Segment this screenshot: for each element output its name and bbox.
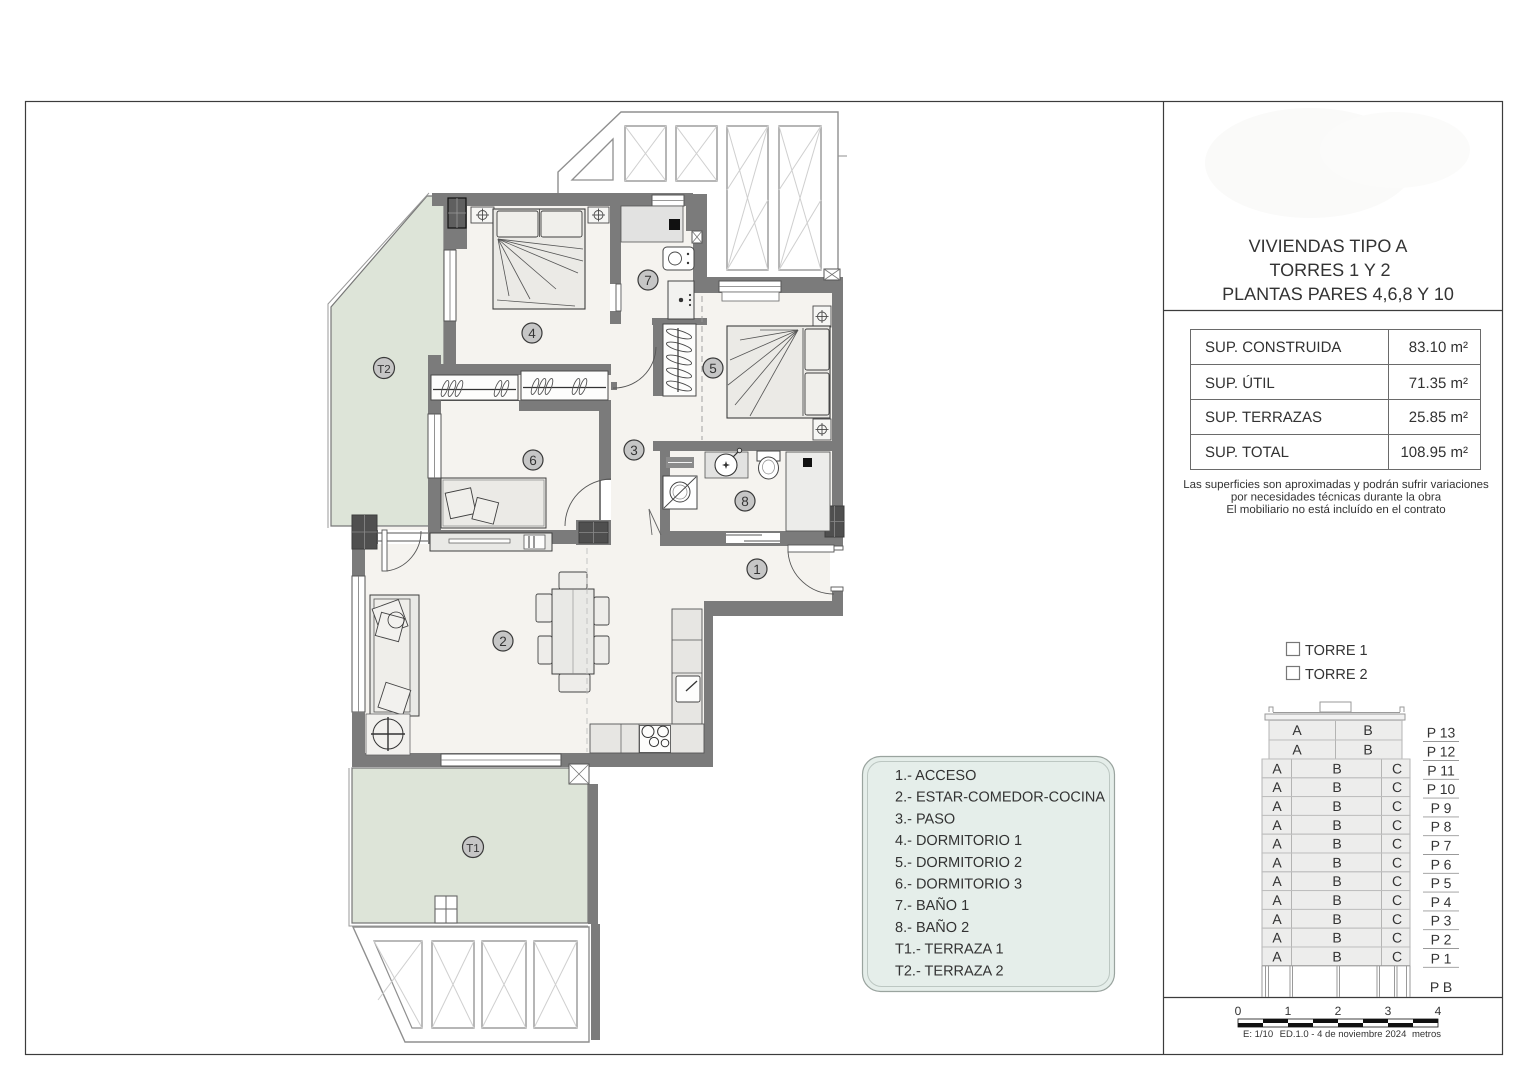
svg-text:A: A: [1272, 873, 1282, 889]
svg-text:P 5: P 5: [1431, 875, 1452, 891]
svg-text:83.10 m²: 83.10 m²: [1409, 339, 1468, 356]
svg-text:B: B: [1332, 836, 1341, 852]
svg-text:ED.1.0 - 4 de noviembre 2024: ED.1.0 - 4 de noviembre 2024: [1280, 1029, 1407, 1040]
svg-text:1.- ACCESO: 1.- ACCESO: [895, 768, 976, 784]
svg-text:2: 2: [1335, 1004, 1342, 1018]
svg-text:A: A: [1272, 892, 1282, 908]
svg-text:P 3: P 3: [1431, 913, 1452, 929]
svg-text:C: C: [1392, 836, 1402, 852]
svg-text:5: 5: [709, 361, 717, 376]
svg-text:0: 0: [1235, 1004, 1242, 1018]
svg-text:TORRE 1: TORRE 1: [1305, 643, 1368, 659]
svg-text:4: 4: [528, 326, 536, 341]
svg-text:A: A: [1292, 742, 1302, 758]
svg-text:P 6: P 6: [1431, 856, 1452, 872]
svg-text:P 10: P 10: [1427, 781, 1456, 797]
svg-text:3: 3: [1385, 1004, 1392, 1018]
svg-text:B: B: [1363, 722, 1372, 738]
svg-text:C: C: [1392, 873, 1402, 889]
svg-text:P 11: P 11: [1427, 762, 1455, 778]
svg-text:P 4: P 4: [1431, 894, 1452, 910]
svg-text:7.- BAÑO 1: 7.- BAÑO 1: [895, 897, 969, 914]
svg-text:PLANTAS PARES 4,6,8 Y 10: PLANTAS PARES 4,6,8 Y 10: [1222, 284, 1454, 304]
svg-text:B: B: [1332, 892, 1341, 908]
svg-text:2: 2: [499, 634, 507, 649]
svg-text:1: 1: [753, 562, 761, 577]
svg-text:8.- BAÑO 2: 8.- BAÑO 2: [895, 919, 969, 936]
svg-text:8: 8: [741, 494, 749, 509]
svg-text:B: B: [1363, 742, 1372, 758]
svg-text:Las superficies son aproximada: Las superficies son aproximadas y podrán…: [1183, 479, 1489, 491]
svg-text:El mobiliario no está incluído: El mobiliario no está incluído en el con…: [1226, 504, 1445, 516]
svg-text:3: 3: [630, 443, 638, 458]
svg-text:A: A: [1272, 854, 1282, 870]
svg-text:5.- DORMITORIO 2: 5.- DORMITORIO 2: [895, 855, 1022, 871]
svg-text:C: C: [1392, 930, 1402, 946]
svg-text:A: A: [1272, 817, 1282, 833]
svg-text:C: C: [1392, 892, 1402, 908]
svg-text:A: A: [1272, 779, 1282, 795]
svg-text:B: B: [1332, 760, 1341, 776]
svg-text:C: C: [1392, 911, 1402, 927]
svg-text:6.- DORMITORIO 3: 6.- DORMITORIO 3: [895, 877, 1022, 893]
svg-text:SUP. CONSTRUIDA: SUP. CONSTRUIDA: [1205, 339, 1341, 356]
svg-text:A: A: [1272, 798, 1282, 814]
svg-text:25.85 m²: 25.85 m²: [1409, 409, 1468, 426]
svg-text:71.35 m²: 71.35 m²: [1409, 375, 1468, 392]
svg-text:T2: T2: [377, 364, 390, 376]
svg-text:P 1: P 1: [1431, 950, 1452, 966]
svg-text:C: C: [1392, 817, 1402, 833]
svg-text:B: B: [1332, 911, 1341, 927]
svg-text:por necesidades técnicas duran: por necesidades técnicas durante la obra: [1231, 492, 1442, 504]
svg-text:4: 4: [1435, 1004, 1442, 1018]
svg-text:B: B: [1332, 798, 1341, 814]
svg-text:P 13: P 13: [1427, 725, 1456, 741]
svg-text:C: C: [1392, 854, 1402, 870]
svg-text:A: A: [1272, 948, 1282, 964]
svg-text:B: B: [1332, 948, 1341, 964]
svg-text:C: C: [1392, 760, 1402, 776]
svg-text:metros: metros: [1412, 1029, 1441, 1040]
svg-text:B: B: [1332, 779, 1341, 795]
svg-text:A: A: [1272, 911, 1282, 927]
svg-text:T1.- TERRAZA 1: T1.- TERRAZA 1: [895, 942, 1004, 958]
svg-text:P 9: P 9: [1431, 800, 1452, 816]
svg-text:A: A: [1292, 722, 1302, 738]
svg-text:7: 7: [644, 273, 652, 288]
svg-text:B: B: [1332, 873, 1341, 889]
svg-text:E: 1/10: E: 1/10: [1243, 1029, 1273, 1040]
svg-text:TORRE 2: TORRE 2: [1305, 667, 1368, 683]
svg-text:4.- DORMITORIO 1: 4.- DORMITORIO 1: [895, 833, 1022, 849]
svg-text:3.- PASO: 3.- PASO: [895, 811, 955, 827]
svg-text:P 12: P 12: [1427, 744, 1456, 760]
svg-text:C: C: [1392, 798, 1402, 814]
svg-text:P 8: P 8: [1431, 819, 1452, 835]
svg-text:T1: T1: [466, 843, 479, 855]
svg-text:P 2: P 2: [1431, 932, 1452, 948]
svg-text:B: B: [1332, 817, 1341, 833]
svg-text:1: 1: [1285, 1004, 1292, 1018]
svg-text:B: B: [1332, 930, 1341, 946]
svg-text:SUP. ÚTIL: SUP. ÚTIL: [1205, 374, 1275, 392]
svg-text:SUP. TERRAZAS: SUP. TERRAZAS: [1205, 409, 1322, 426]
svg-text:P B: P B: [1430, 979, 1452, 995]
svg-text:T2.- TERRAZA 2: T2.- TERRAZA 2: [895, 963, 1004, 979]
svg-text:2.- ESTAR-COMEDOR-COCINA: 2.- ESTAR-COMEDOR-COCINA: [895, 790, 1105, 806]
svg-text:VIVIENDAS TIPO A: VIVIENDAS TIPO A: [1249, 236, 1408, 256]
svg-text:A: A: [1272, 760, 1282, 776]
svg-text:C: C: [1392, 948, 1402, 964]
svg-text:TORRES 1 Y 2: TORRES 1 Y 2: [1269, 260, 1390, 280]
svg-text:B: B: [1332, 854, 1341, 870]
svg-text:108.95 m²: 108.95 m²: [1400, 444, 1468, 461]
svg-text:A: A: [1272, 836, 1282, 852]
svg-text:SUP. TOTAL: SUP. TOTAL: [1205, 444, 1289, 461]
svg-text:C: C: [1392, 779, 1402, 795]
svg-text:P 7: P 7: [1431, 838, 1452, 854]
svg-text:A: A: [1272, 930, 1282, 946]
svg-text:6: 6: [529, 453, 537, 468]
